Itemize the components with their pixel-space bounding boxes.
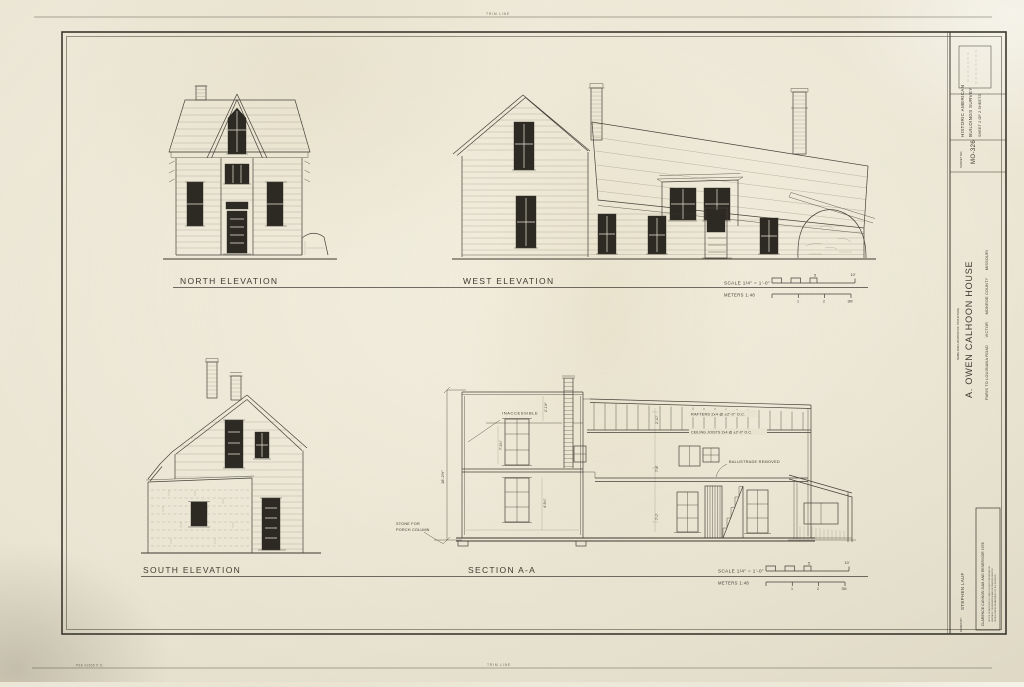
survey-number-label: SURVEY NO. [959,151,963,168]
scale-tick-2m: 2 [817,587,819,591]
front-door [223,202,251,254]
agency-line-3: UNITED STATES DEPARTMENT OF THE INTERIOR [994,574,997,622]
structure-identity: NAME AND LOCATION OF STRUCTURE A. OWEN C… [956,250,989,400]
scale-bar-top: SCALE 1/4" = 1'-0" 5 10' METERS 1:48 1 2… [724,273,856,304]
scale-tick-1m: 1 [791,587,793,591]
structure-name-label: NAME AND LOCATION OF STRUCTURE [956,308,960,360]
svg-text:INACCESSIBLE: INACCESSIBLE [502,411,538,416]
scale-tick-3m: 3M [848,300,853,304]
attic-note: INACCESSIBLE [502,411,538,416]
scale-bar-bottom: SCALE 1/4" = 1'-0" 5 10' METERS 1:48 1 2… [718,561,850,591]
west-elevation-drawing [452,84,876,260]
chimney-2 [229,373,243,401]
agency-line-1: OFFICE OF ARCHEOLOGY AND HISTORIC PRESER… [988,566,991,622]
south-elevation-drawing [141,359,321,554]
wing-walls [583,399,811,538]
dim-f: 7'-0" [655,512,659,520]
scale-tick-2m: 2 [823,300,825,304]
scale-tick-1m: 1 [797,300,799,304]
habs-sheet-scan: { "sheet": { "trim_top": "TRIM LINE", "t… [0,0,1024,682]
project-title: CLARENCE CANNON DAM AND RESERVOIR 1978 [981,542,985,626]
gable-window [512,122,536,170]
dim-a: 2'-1½" [544,402,548,412]
upper-window [223,164,251,184]
drawn-by-label: DRAWN BY: [959,617,963,632]
dim-d: 2'-10" [655,415,659,424]
stone-stoop [302,233,328,255]
title-block: HISTORIC AMERICAN BUILDINGS SURVEY SHEET… [948,32,1007,634]
delineator: DRAWN BY: STEPHEN LAUF [959,572,965,632]
chimney [195,86,208,100]
svg-text:BUILDINGS SURVEY: BUILDINGS SURVEY [968,87,973,137]
drawn-by-name: STEPHEN LAUF [960,572,965,610]
dormer [657,174,743,227]
dim-overall: 18'-2½" [440,470,445,484]
scale-metric-label: METERS 1:48 [718,581,749,586]
lower-door [258,498,286,553]
agency-line-2: HERITAGE CONSERVATION AND RECREATION SER… [991,568,994,622]
wing-window-b [744,490,771,534]
trim-line-bottom-label: TRIM LINE [487,663,511,667]
upper-room-window [502,419,532,466]
svg-text:BALUSTRADE REMOVED: BALUSTRADE REMOVED [729,460,780,464]
scale-tick-5: 5 [814,274,816,278]
hatched-door [705,486,722,538]
project-box: CLARENCE CANNON DAM AND RESERVOIR 1978 O… [976,508,1000,630]
stone-cellar-mound [789,193,875,259]
section-label: SECTION A-A [468,565,536,575]
north-elevation-drawing [163,86,337,259]
wing-roof-structure: RAFTERS 2x4 @ ±2'-0" O.C. CEILING JOISTS… [587,399,811,435]
survey-number: SURVEY NO. MO-326 [959,140,977,168]
south-elevation-label: SOUTH ELEVATION [143,565,241,575]
scale-tick-3m: 3M [842,587,847,591]
scale-imperial-label: SCALE 1/4" = 1'-0" [718,569,764,574]
scale-imperial-label: SCALE 1/4" = 1'-0" [724,281,770,286]
right-chimney [791,89,808,155]
print-code: P98 41965 P.O. [76,664,104,668]
sheet-drawing: TRIM LINE TRIM LINE P98 41965 P.O. [0,0,1024,682]
west-elevation-label: WEST ELEVATION [463,276,554,286]
scale-metric-label: METERS 1:48 [724,293,755,298]
stone-wing [146,476,254,553]
lower-room-window [502,478,532,523]
section-drawing: 18'-2½" 7'-3¾" 2'-1½" 4'-9¼" 2'-10" 7'-6… [396,376,856,546]
dimension-lines: 18'-2½" 7'-3¾" 2'-1½" 4'-9¼" 2'-10" 7'-6… [434,387,659,543]
scale-tick-5: 5 [808,562,810,566]
balustrade-note: BALUSTRADE REMOVED [716,460,780,477]
scale-tick-10: 10' [851,273,856,277]
wing-window-a [674,492,701,533]
joists-note: CEILING JOISTS 2x4 @ ±2'-0" O.C. [691,431,752,435]
dim-c: 4'-9¼" [543,498,547,508]
dim-b: 7'-3¾" [499,440,503,450]
rear-porch [788,475,856,542]
north-elevation-label: NORTH ELEVATION [180,276,278,286]
stone-column-note: STONE FOR PORCH COLUMN [396,522,444,544]
lower-window [514,196,538,248]
svg-text:PORCH COLUMN: PORCH COLUMN [396,528,430,532]
cupboard [574,446,586,462]
rafters-note: RAFTERS 2x4 @ ±2'-0" O.C. [691,413,745,417]
svg-text:STONE FOR: STONE FOR [396,522,420,526]
sheet-count: SHEET 2 OF 2 SHEETS [978,94,982,137]
structure-location: PARIS TO LOUISIANA ROAD VICTOR MONROE CO… [985,250,989,400]
mid-window-sash [679,446,719,466]
ground-footings [456,538,852,546]
scale-tick-10: 10' [845,561,850,565]
svg-text:HISTORIC AMERICAN: HISTORIC AMERICAN [960,85,965,137]
dim-e: 7'-6" [655,464,659,472]
stair [723,486,743,538]
chimney-flue [562,376,575,468]
structure-name: A. OWEN CALHOON HOUSE [964,261,974,398]
chimney-1 [205,359,219,399]
trim-line-top-label: TRIM LINE [486,12,510,16]
upper-door [223,420,245,468]
upper-window [253,432,271,459]
center-chimney [589,84,605,141]
survey-number-value: MO-326 [971,140,977,164]
wing-wall [588,214,864,258]
field-note-box [959,46,991,88]
habs-heading: HISTORIC AMERICAN BUILDINGS SURVEY SHEET… [960,85,982,137]
